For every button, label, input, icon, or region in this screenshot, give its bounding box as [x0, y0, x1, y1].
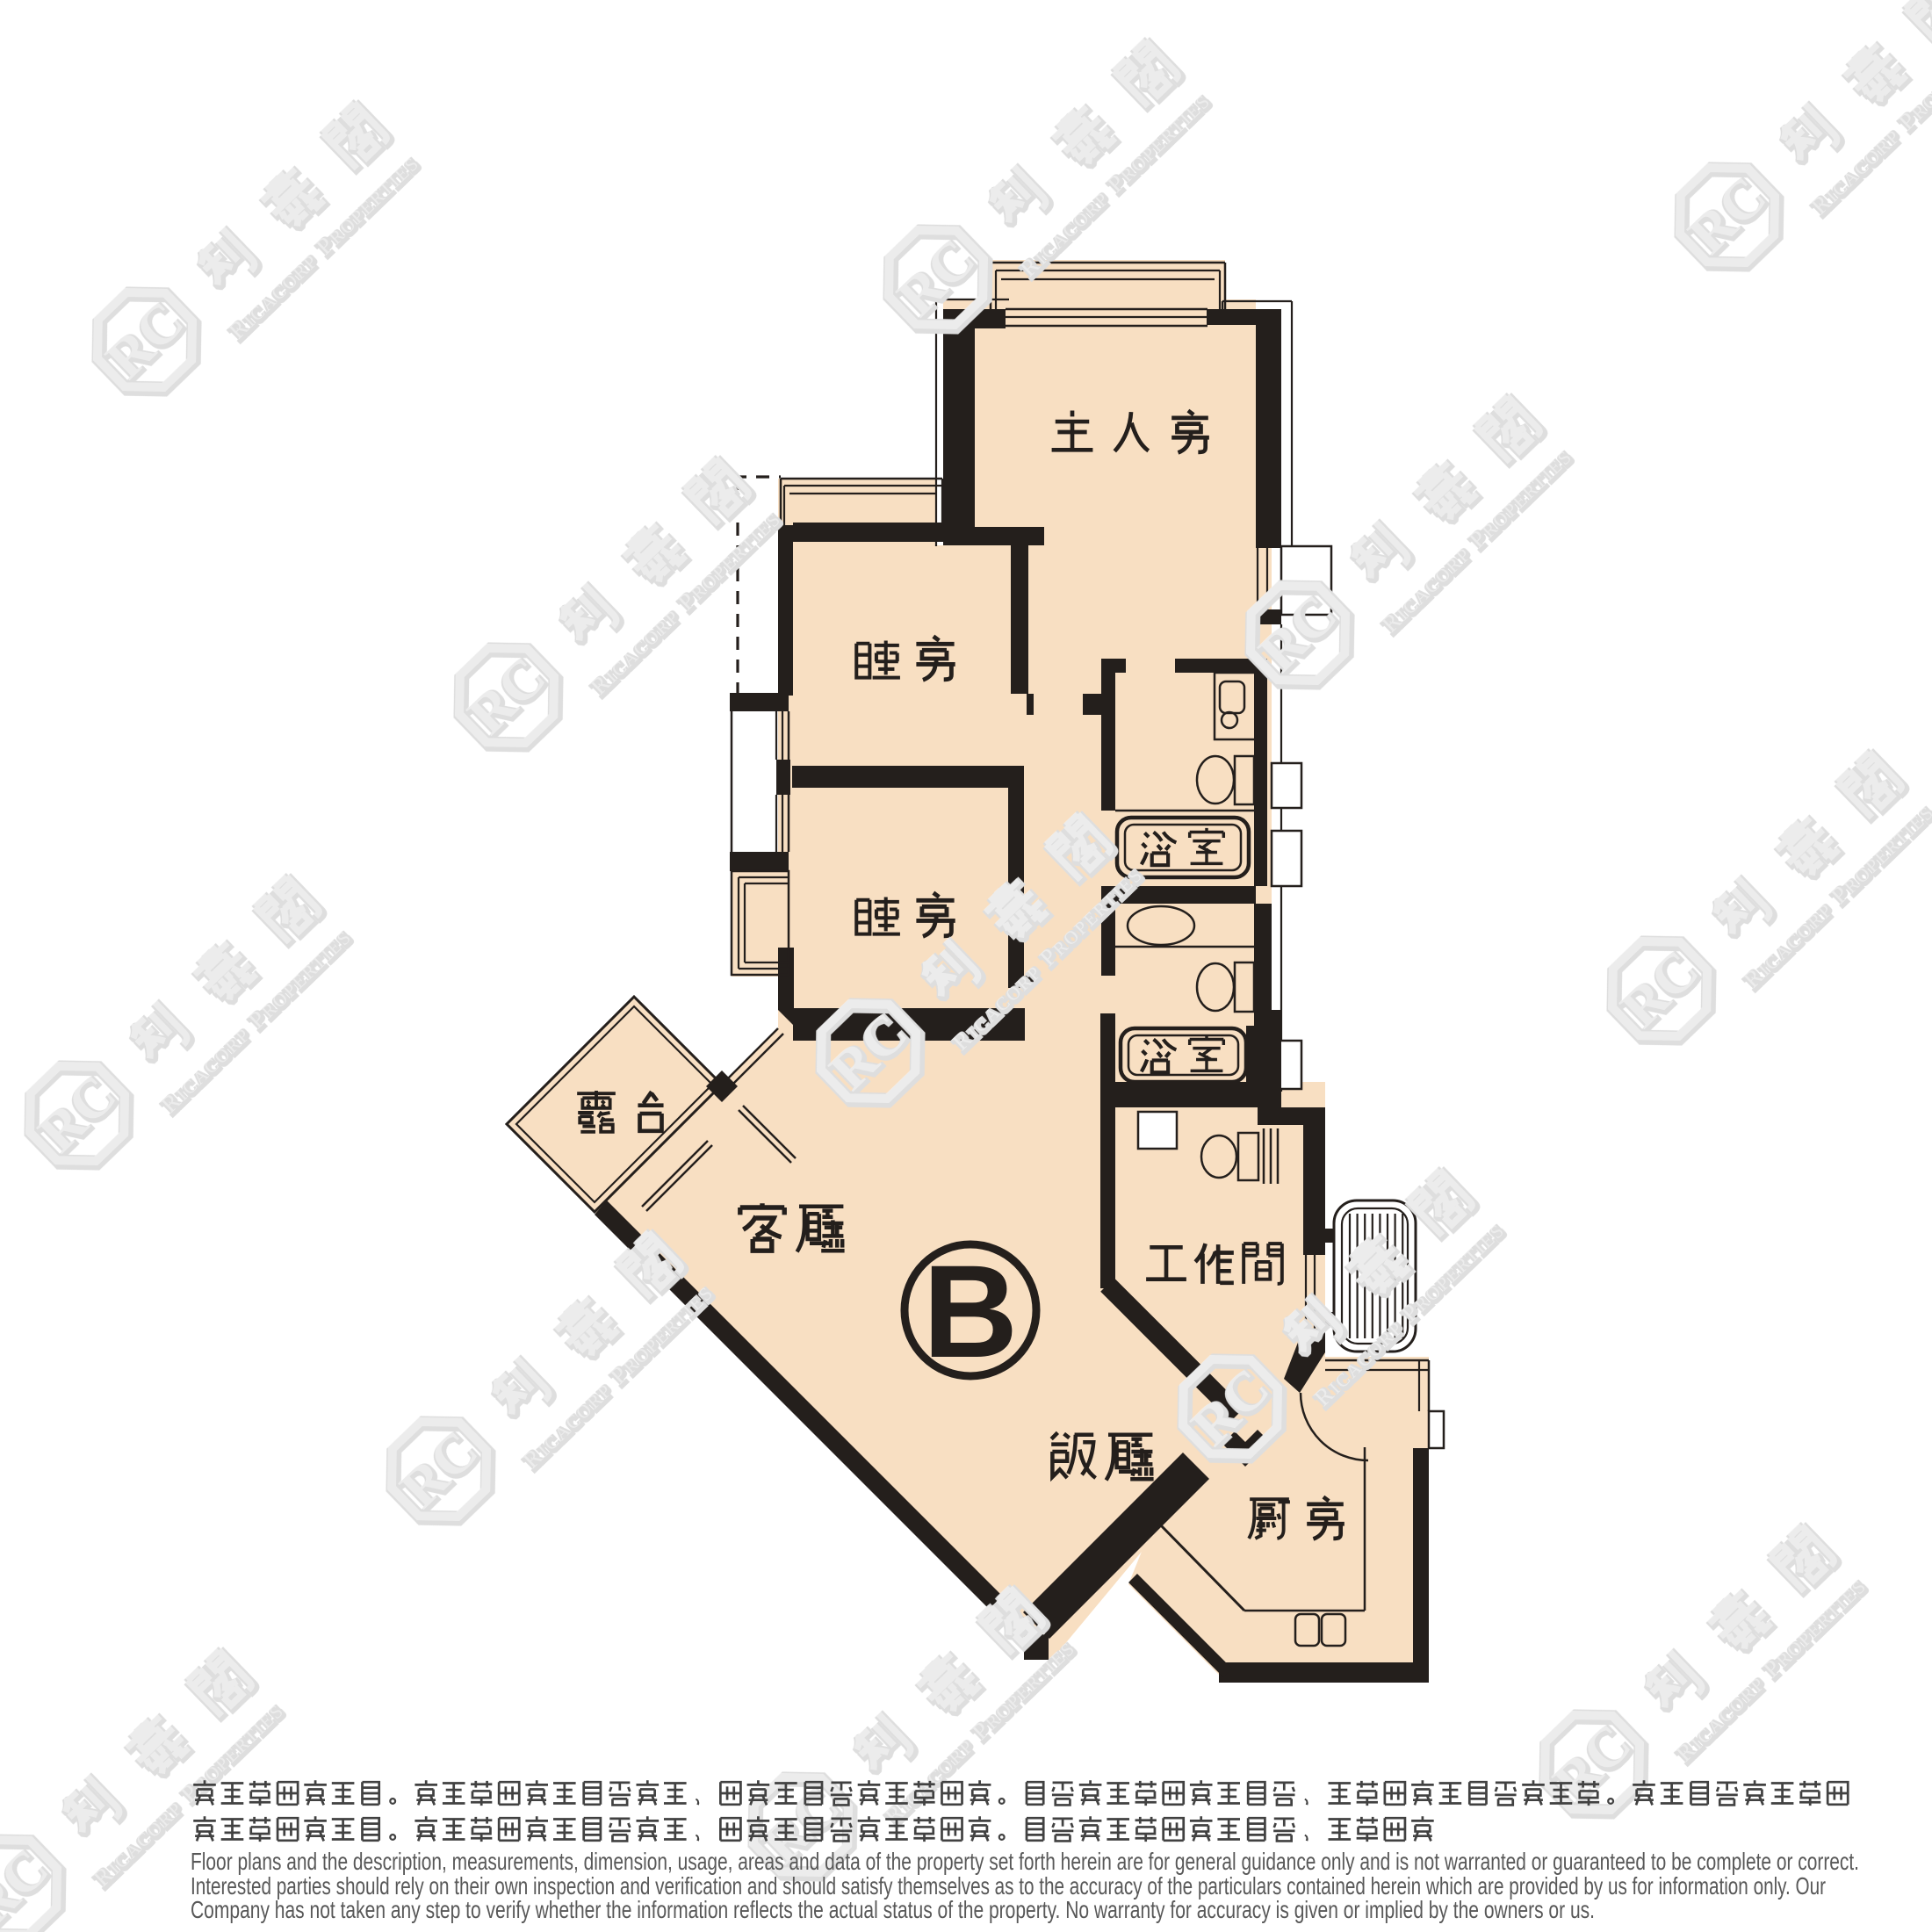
svg-text:B: B	[923, 1237, 1018, 1385]
svg-text:Floor plans and the descriptio: Floor plans and the description, measure…	[191, 1848, 1859, 1875]
svg-text:Company has not taken any step: Company has not taken any step to verify…	[191, 1896, 1595, 1923]
